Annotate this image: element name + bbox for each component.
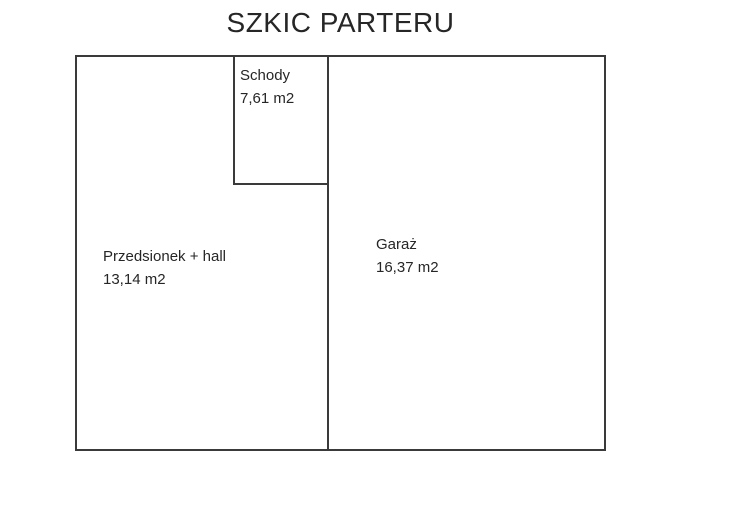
wall-stairs-bottom [233, 183, 329, 185]
room-name: Przedsionek + hall [103, 245, 226, 268]
room-name: Garaż [376, 233, 439, 256]
room-label-przedsionek-hall: Przedsionek + hall 13,14 m2 [103, 245, 226, 291]
floorplan-title: SZKIC PARTERU [75, 7, 606, 39]
floorplan-outline: Schody 7,61 m2 Przedsionek + hall 13,14 … [75, 55, 606, 451]
wall-stairs-left [233, 57, 235, 185]
room-area: 16,37 m2 [376, 256, 439, 279]
floorplan-sketch: SZKIC PARTERU Schody 7,61 m2 Przedsionek… [0, 0, 751, 514]
room-area: 13,14 m2 [103, 268, 226, 291]
room-name: Schody [240, 64, 294, 87]
room-label-garaz: Garaż 16,37 m2 [376, 233, 439, 279]
room-area: 7,61 m2 [240, 87, 294, 110]
room-label-schody: Schody 7,61 m2 [240, 64, 294, 110]
wall-hall-garage-divider [327, 57, 329, 449]
